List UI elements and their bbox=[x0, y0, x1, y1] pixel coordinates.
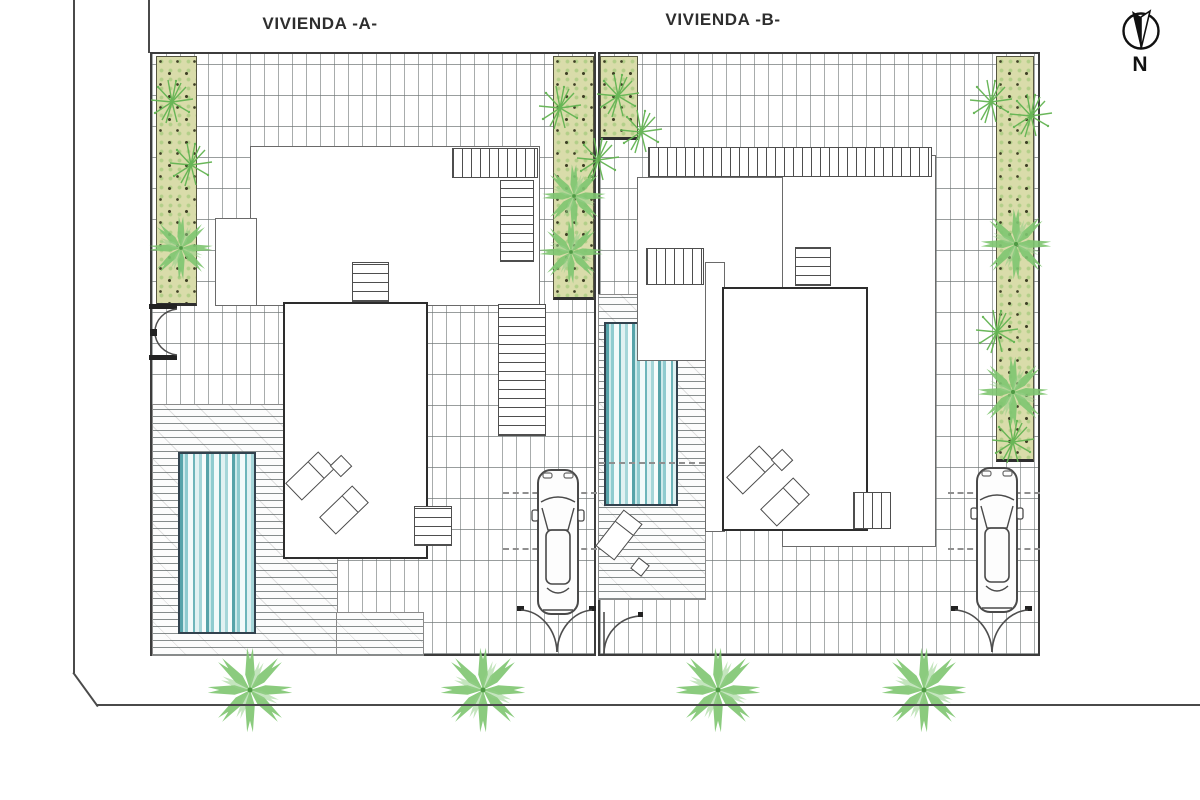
house-a-entry-stair bbox=[352, 262, 389, 302]
house-b-entry-stair bbox=[795, 247, 831, 286]
plot-a-swimming-pool bbox=[178, 452, 256, 634]
shrub-icon bbox=[146, 76, 198, 128]
house-b-top-stair bbox=[648, 147, 932, 177]
plot-b-deck-guide-line bbox=[599, 462, 705, 464]
plot-a-pedestrian-gate-icon bbox=[149, 304, 181, 360]
plot-b-pedestrian-gate-icon bbox=[601, 610, 643, 656]
shrub-icon bbox=[165, 139, 217, 191]
palm-tree-icon bbox=[145, 212, 217, 284]
shrub-icon bbox=[534, 82, 586, 134]
house-a-upper-wing bbox=[215, 218, 257, 306]
plot-a-car-top-view-icon bbox=[530, 466, 586, 618]
boundary-line-top-left bbox=[148, 0, 150, 53]
sidewalk-line bbox=[96, 704, 1200, 706]
house-a-top-stair bbox=[452, 148, 538, 178]
palm-tree-icon bbox=[202, 642, 298, 738]
house-b-left-stair bbox=[646, 248, 704, 285]
shrub-icon bbox=[615, 106, 667, 158]
street-corner-chamfer bbox=[72, 672, 98, 707]
north-label: N bbox=[1124, 53, 1156, 77]
north-arrow-icon bbox=[1112, 5, 1170, 55]
house-a-side-stair-long bbox=[498, 304, 546, 436]
shrub-icon bbox=[1005, 90, 1057, 142]
plot-a-deck-strip bbox=[336, 612, 424, 656]
palm-tree-icon bbox=[976, 204, 1056, 284]
street-boundary-left bbox=[73, 0, 75, 673]
palm-tree-icon bbox=[435, 642, 531, 738]
palm-tree-icon bbox=[876, 642, 972, 738]
site-plan-canvas: VIVIENDA -A- VIVIENDA -B- N bbox=[0, 0, 1200, 800]
shrub-icon bbox=[987, 416, 1039, 468]
plot-a-title: VIVIENDA -A- bbox=[235, 14, 405, 34]
shrub-icon bbox=[971, 306, 1023, 358]
house-a-side-stair-upper bbox=[500, 180, 534, 262]
palm-tree-icon bbox=[535, 216, 607, 288]
house-a-terrace-stair bbox=[414, 506, 452, 546]
palm-tree-icon bbox=[670, 642, 766, 738]
house-a-main-roof bbox=[283, 302, 428, 559]
house-b-terrace-stair bbox=[853, 492, 891, 529]
plot-b-car-top-view-icon bbox=[969, 464, 1025, 616]
plot-b-title: VIVIENDA -B- bbox=[638, 10, 808, 30]
